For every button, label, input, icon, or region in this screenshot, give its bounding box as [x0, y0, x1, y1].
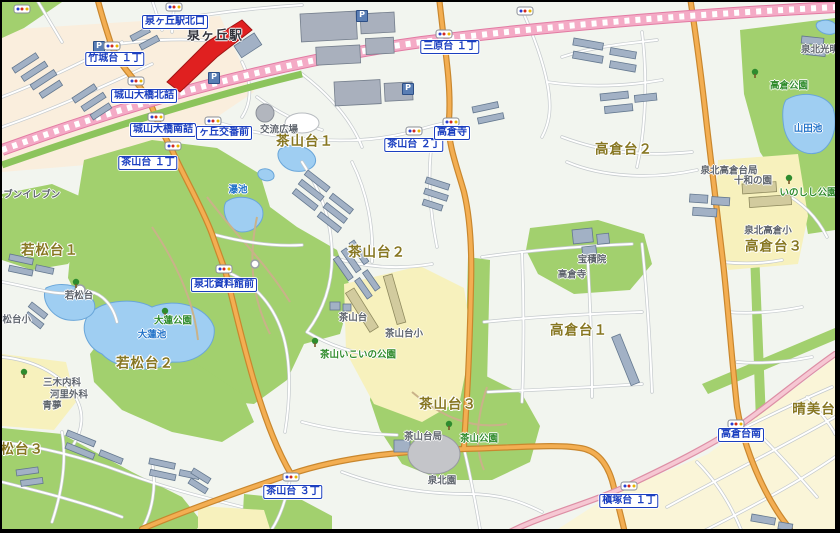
intersection-label: 竹城台 １丁 [85, 52, 144, 66]
intersection-label: 城山大橋南詰 [130, 123, 196, 137]
traffic-signal-icon [216, 265, 233, 274]
traffic-signal-icon [165, 142, 182, 151]
station-label: 泉ヶ丘駅 [187, 30, 243, 43]
park-label: いのしし公園 [779, 188, 835, 198]
map-canvas[interactable]: 泉ヶ丘駅北口竹城台 １丁城山大橋北詰城山大橋南詰ヶ丘交番前茶山台 １丁三原台 １… [2, 2, 835, 529]
park-label: 茶山公園 [460, 434, 498, 444]
district-label: 晴美台 [792, 403, 835, 417]
district-label: 若松台３ [2, 443, 44, 457]
traffic-signal-icon [436, 30, 453, 39]
facility-label: 三木内科 [43, 378, 81, 388]
district-label: 高倉台２ [595, 143, 653, 157]
intersection-label: 高倉寺 [434, 126, 470, 140]
traffic-signal-icon [148, 113, 165, 122]
parking-icon: P [208, 72, 220, 84]
facility-label: 茶山台局 [404, 432, 442, 442]
district-label: 茶山台１ [276, 135, 334, 149]
district-label: 茶山台３ [419, 398, 477, 412]
intersection-label: 城山大橋北詰 [111, 89, 177, 103]
facility-label: 宝積院 [578, 255, 607, 265]
traffic-signal-icon [104, 42, 121, 51]
district-label: 茶山台２ [348, 246, 406, 260]
district-label: 若松台１ [21, 244, 79, 258]
intersection-label: 茶山台 ３丁 [263, 485, 322, 499]
facility-label: 若松台 [65, 291, 94, 301]
facility-label: 泉北高倉小 [744, 226, 792, 236]
district-label: 若松台２ [116, 357, 174, 371]
water-label: 山田池 [794, 124, 823, 134]
facility-label: 茶山台小 [385, 329, 423, 339]
facility-label: 泉北光明 [801, 45, 835, 55]
traffic-signal-icon [517, 7, 534, 16]
intersection-label: 三原台 １丁 [420, 40, 479, 54]
traffic-signal-icon [128, 77, 145, 86]
parking-icon: P [356, 10, 368, 22]
traffic-signal-icon [205, 117, 222, 126]
park-label: 大蓮公園 [154, 316, 192, 326]
district-label: 高倉台１ [550, 324, 608, 338]
map-labels-layer: 泉ヶ丘駅北口竹城台 １丁城山大橋北詰城山大橋南詰ヶ丘交番前茶山台 １丁三原台 １… [2, 2, 835, 529]
traffic-signal-icon [283, 473, 300, 482]
intersection-label: 泉ヶ丘駅北口 [142, 15, 208, 29]
facility-label: 茶山台 [339, 313, 368, 323]
intersection-label: 槇塚台 １丁 [599, 494, 658, 508]
facility-label: 十和の園 [734, 176, 772, 186]
facility-label: 高倉寺 [558, 270, 587, 280]
intersection-label: ヶ丘交番前 [196, 126, 252, 140]
traffic-signal-icon [621, 482, 638, 491]
intersection-label: 高倉台南 [718, 428, 764, 442]
traffic-signal-icon [406, 127, 423, 136]
water-label: 瀑池 [228, 185, 247, 195]
facility-label: 河里外科 [50, 390, 88, 400]
intersection-label: 茶山台 １丁 [118, 156, 177, 170]
traffic-signal-icon [166, 3, 183, 12]
map-frame: 泉ヶ丘駅北口竹城台 １丁城山大橋北詰城山大橋南詰ヶ丘交番前茶山台 １丁三原台 １… [0, 0, 840, 533]
water-label: 大蓮池 [138, 330, 167, 340]
facility-label: 若松台小 [2, 315, 31, 325]
intersection-label: 泉北資料館前 [191, 278, 257, 292]
parking-icon: P [402, 83, 414, 95]
park-label: 高倉公園 [770, 81, 808, 91]
traffic-signal-icon [14, 5, 31, 14]
facility-label: 泉北園 [428, 476, 457, 486]
park-label: 茶山いこいの公園 [320, 350, 396, 360]
facility-label: セブンイレブン [2, 190, 60, 200]
district-label: 高倉台３ [745, 240, 803, 254]
facility-label: 青夢 [42, 401, 61, 411]
intersection-label: 茶山台 ２丁 [384, 138, 443, 152]
